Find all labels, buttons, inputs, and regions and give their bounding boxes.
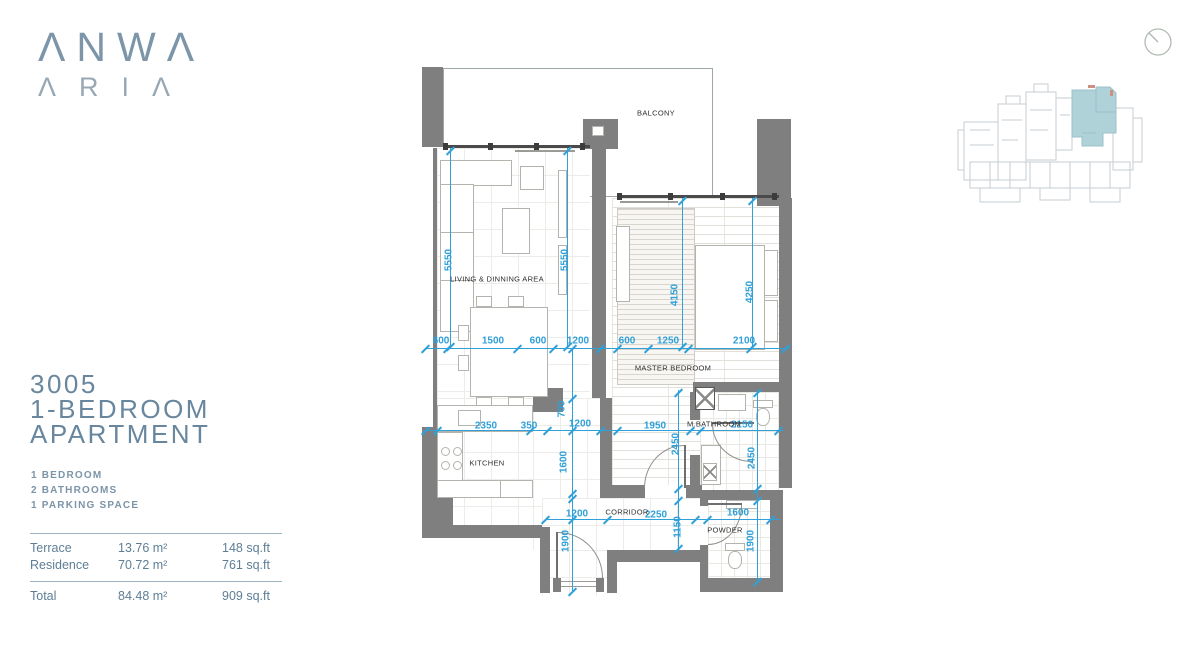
toilet-bowl [756, 408, 770, 426]
wall-segment [422, 67, 443, 147]
shaft-duct [695, 387, 715, 410]
pillow [764, 300, 778, 342]
wall-segment [700, 498, 708, 506]
dimension-label: 1900 [561, 530, 572, 552]
dimension-line [752, 198, 753, 348]
dimension-label: 1200 [569, 419, 591, 430]
stove-burner [441, 461, 450, 470]
dimension-label: 5550 [444, 249, 455, 271]
area-label: Residence [30, 558, 118, 572]
brand-logo: ΛNWΛ ΛRIΛ [38, 24, 205, 104]
wall-segment [540, 527, 550, 593]
stove-burner [453, 461, 462, 470]
window-post [443, 143, 448, 150]
table-row: Residence 70.72 m² 761 sq.ft [30, 557, 282, 574]
dimension-label: 1950 [644, 421, 666, 432]
floor-plan: 5550555041504250600150060012006001250210… [420, 60, 810, 605]
room-label: MASTER BEDROOM [635, 364, 711, 373]
dimension-label: 1900 [746, 530, 757, 552]
toilet-tank [725, 543, 745, 551]
dimension-label: 600 [530, 336, 547, 347]
table-row: Terrace 13.76 m² 148 sq.ft [30, 540, 282, 557]
room-label: BALCONY [637, 109, 675, 118]
wall-segment [596, 578, 604, 592]
wall-segment [600, 398, 612, 498]
unit-marker [1088, 85, 1095, 88]
wall-segment [553, 578, 561, 592]
room-label: CORRIDOR [605, 508, 648, 517]
wall-segment [779, 198, 792, 488]
dimension-label: 350 [521, 421, 538, 432]
chair [458, 325, 469, 341]
coffee-table [502, 208, 530, 254]
wall-segment [770, 490, 783, 590]
area-label: Total [30, 589, 118, 603]
dimension-label: 4250 [745, 281, 756, 303]
chair [508, 296, 524, 307]
room-label: LIVING & DINNING AREA [450, 275, 544, 284]
dimension-label: 700 [557, 401, 568, 418]
dimension-label: 2100 [733, 336, 755, 347]
dimension-label: 1200 [567, 336, 589, 347]
dimension-label: 4150 [670, 284, 681, 306]
room-label: M.BATHROOM [687, 420, 741, 429]
brand-name: ΛNWΛ [38, 24, 205, 70]
chair [476, 296, 492, 307]
dimension-label: 2350 [475, 421, 497, 432]
window-post [617, 193, 622, 200]
window-slider [561, 581, 596, 582]
feature-item: 1 BEDROOM [31, 468, 139, 483]
unit-type-line2: APARTMENT [30, 422, 210, 447]
armchair [520, 166, 544, 190]
window-slider [561, 586, 596, 587]
toilet-tank [753, 400, 773, 408]
sofa-cushion [440, 184, 474, 233]
highlighted-unit [1072, 87, 1116, 146]
dimension-label: 2450 [747, 447, 758, 469]
wall-segment [422, 427, 437, 498]
dimension-label: 1200 [566, 509, 588, 520]
dimension-label: 1500 [482, 336, 504, 347]
wall-segment [453, 525, 542, 538]
tv-unit [558, 170, 567, 238]
window-post [534, 143, 539, 150]
table-total-row: Total 84.48 m² 909 sq.ft [30, 581, 282, 605]
wall-segment [700, 545, 708, 578]
wall-segment [607, 550, 617, 593]
unit-title: 3005 1-BEDROOM APARTMENT [30, 372, 210, 447]
window-marker [592, 126, 604, 136]
dimension-label: 1600 [727, 508, 749, 519]
room-label: POWDER [707, 526, 743, 535]
window-post [488, 143, 493, 150]
area-sqft: 148 sq.ft [222, 541, 282, 555]
feature-item: 1 PARKING SPACE [31, 498, 139, 513]
area-sqm: 13.76 m² [118, 541, 222, 555]
dimension-line [572, 348, 573, 593]
unit-marker [1110, 90, 1113, 96]
dimension-label: 5550 [560, 249, 571, 271]
wall-segment [612, 485, 645, 498]
key-plan [950, 70, 1150, 220]
shower-fixture [703, 463, 717, 481]
dimension-line [425, 348, 790, 349]
dimension-tick [421, 344, 430, 353]
wall-segment [700, 578, 783, 592]
features-list: 1 BEDROOM 2 BATHROOMS 1 PARKING SPACE [31, 468, 139, 513]
area-sqft: 909 sq.ft [222, 589, 282, 603]
wall-segment [433, 148, 437, 428]
pillow [764, 250, 778, 296]
page: { "brand": {"line1": "ΛNWΛ", "line2": "Λ… [0, 0, 1200, 666]
window-slider [620, 201, 678, 203]
feature-item: 2 BATHROOMS [31, 483, 139, 498]
fridge [500, 480, 533, 498]
area-label: Terrace [30, 541, 118, 555]
window-post [668, 193, 673, 200]
wall-segment [690, 455, 700, 490]
stove-burner [453, 447, 462, 456]
window-post [580, 143, 585, 150]
area-sqm: 70.72 m² [118, 558, 222, 572]
dimension-label: 1250 [657, 336, 679, 347]
dimension-label: 1150 [673, 516, 684, 538]
wall-segment [422, 498, 453, 538]
toilet-bowl [728, 551, 742, 569]
north-indicator-icon [1136, 20, 1180, 64]
bathroom-basin [718, 394, 746, 411]
wall-segment [757, 119, 791, 198]
brand-subname: ΛRIΛ [38, 70, 205, 104]
area-sqm: 84.48 m² [118, 589, 222, 603]
dimension-label: 2450 [671, 433, 682, 455]
area-table: Terrace 13.76 m² 148 sq.ft Residence 70.… [30, 533, 282, 605]
dimension-line [682, 198, 683, 348]
stove-burner [441, 447, 450, 456]
room-label: KITCHEN [469, 459, 504, 468]
wall-segment [592, 148, 606, 398]
chair [458, 355, 469, 371]
window-post [720, 193, 725, 200]
door-leaf [684, 445, 686, 488]
dimension-label: 1600 [559, 451, 570, 473]
dimension-label: 600 [433, 336, 450, 347]
wardrobe [616, 226, 630, 302]
area-sqft: 761 sq.ft [222, 558, 282, 572]
dining-table [470, 307, 548, 397]
wall-segment [617, 550, 702, 562]
window-post [772, 193, 777, 200]
dimension-label: 600 [619, 336, 636, 347]
